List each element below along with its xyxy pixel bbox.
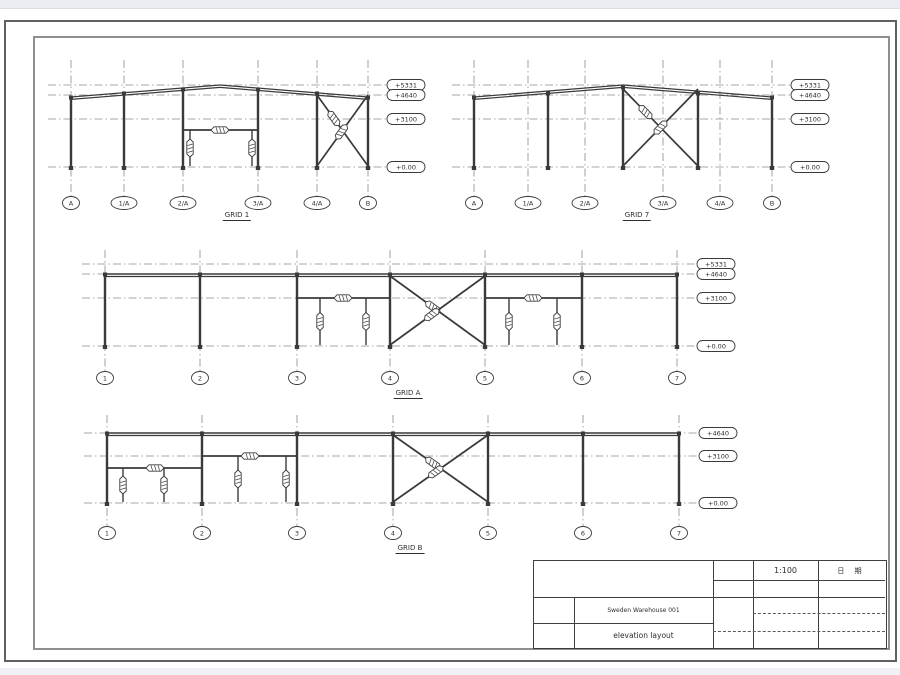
drawing-text: +4640 <box>707 429 729 437</box>
drawing-text: +0.00 <box>708 499 728 507</box>
turnbuckle-symbol <box>146 465 164 471</box>
drawing-text: 2 <box>200 529 204 537</box>
column-top-joint <box>770 96 774 100</box>
column-base <box>770 166 774 170</box>
drawing-text: +0.00 <box>396 163 416 171</box>
column-base <box>581 502 585 506</box>
turnbuckle-symbol <box>187 139 193 157</box>
view-caption-grid-b: GRID B <box>396 544 425 554</box>
column-top-joint <box>295 273 299 277</box>
view-caption-grid-1: GRID 1 <box>223 211 251 221</box>
project-name: Sweden Warehouse 001 <box>574 597 713 623</box>
drawing-text: 5 <box>483 374 487 382</box>
column-base <box>315 166 319 170</box>
column-base <box>122 166 126 170</box>
column-base <box>256 166 260 170</box>
column-top-joint <box>696 92 700 96</box>
column-base <box>181 166 185 170</box>
drawing-text: 4/A <box>312 199 323 207</box>
drawing-scale: 1:100 <box>753 561 818 580</box>
date-label: 日 期 <box>818 561 885 580</box>
column-top-joint <box>391 432 395 436</box>
column-top-joint <box>105 432 109 436</box>
drawing-text: 7 <box>677 529 681 537</box>
turnbuckle-symbol <box>554 313 560 331</box>
column-base <box>388 345 392 349</box>
drawing-text: A <box>472 199 477 207</box>
drawing-text: 2/A <box>580 199 591 207</box>
column-base <box>675 345 679 349</box>
column-top-joint <box>546 92 550 96</box>
drawing-text: 3/A <box>658 199 669 207</box>
column-base <box>580 345 584 349</box>
turnbuckle-symbol <box>506 313 512 331</box>
column-base <box>677 502 681 506</box>
drawing-text: +5331 <box>705 260 727 268</box>
column-top-joint <box>315 92 319 96</box>
column-base <box>483 345 487 349</box>
drawing-text: 2/A <box>178 199 189 207</box>
drawing-text: +4640 <box>705 270 727 278</box>
drawing-text: A <box>69 199 74 207</box>
title-block-dashed-divider <box>713 631 885 632</box>
turnbuckle-symbol <box>326 109 342 127</box>
column-top-joint <box>621 86 625 90</box>
column-top-joint <box>581 432 585 436</box>
drawing-text: +3100 <box>705 294 727 302</box>
column-base <box>295 345 299 349</box>
column-top-joint <box>198 273 202 277</box>
column-top-joint <box>677 432 681 436</box>
column-base <box>295 502 299 506</box>
turnbuckle-symbol <box>317 313 323 331</box>
turnbuckle-symbol <box>334 295 352 301</box>
column-base <box>696 166 700 170</box>
column-top-joint <box>472 96 476 100</box>
cad-sheet-screenshot: A1/A2/A3/A4/AB+5331+4640+3100+0.00A1/A2/… <box>0 0 900 675</box>
drawing-text: 1/A <box>523 199 534 207</box>
column-base <box>103 345 107 349</box>
drawing-text: 5 <box>486 529 490 537</box>
column-top-joint <box>483 273 487 277</box>
turnbuckle-symbol <box>161 476 167 494</box>
drawing-text: +3100 <box>707 452 729 460</box>
drawing-text: B <box>366 199 370 207</box>
column-top-joint <box>69 96 73 100</box>
turnbuckle-symbol <box>524 295 542 301</box>
drawing-text: 1 <box>105 529 109 537</box>
column-top-joint <box>181 88 185 92</box>
column-top-joint <box>295 432 299 436</box>
drawing-text: 7 <box>675 374 679 382</box>
column-top-joint <box>122 92 126 96</box>
turnbuckle-symbol <box>241 453 259 459</box>
title-block-divider <box>713 580 885 581</box>
column-top-joint <box>580 273 584 277</box>
column-base <box>200 502 204 506</box>
drawing-text: 4 <box>388 374 392 382</box>
drawing-text: +0.00 <box>800 163 820 171</box>
column-top-joint <box>675 273 679 277</box>
drawing-text: 6 <box>580 374 584 382</box>
column-base <box>621 166 625 170</box>
column-base <box>105 502 109 506</box>
drawing-text: +5331 <box>799 81 821 89</box>
drawing-text: 1 <box>103 374 107 382</box>
column-base <box>472 166 476 170</box>
drawing-text: +4640 <box>799 91 821 99</box>
turnbuckle-symbol <box>249 139 255 157</box>
drawing-text: 6 <box>581 529 585 537</box>
drawing-text: 3 <box>295 374 299 382</box>
column-base <box>486 502 490 506</box>
column-base <box>198 345 202 349</box>
column-top-joint <box>388 273 392 277</box>
drawing-text: 4/A <box>715 199 726 207</box>
elevation-view-grid-7: A1/A2/A3/A4/AB+5331+4640+3100+0.00 <box>452 60 829 210</box>
column-base <box>366 166 370 170</box>
column-base <box>546 166 550 170</box>
sheet-title: elevation layout <box>574 623 713 648</box>
bottom-chrome-strip <box>0 668 900 675</box>
column-top-joint <box>486 432 490 436</box>
elevation-view-grid-b: 1234567+4640+3100+0.00 <box>84 415 737 540</box>
turnbuckle-symbol <box>235 470 241 488</box>
title-block: 1:100 日 期 Sweden Warehouse 001 elevation… <box>533 560 887 649</box>
structural-member <box>71 87 220 99</box>
drawing-text: +3100 <box>395 115 417 123</box>
drawing-text: 3 <box>295 529 299 537</box>
drawing-text: B <box>770 199 774 207</box>
drawing-text: +4640 <box>395 91 417 99</box>
column-top-joint <box>103 273 107 277</box>
turnbuckle-symbol <box>211 127 229 133</box>
elevation-view-grid-1: A1/A2/A3/A4/AB+5331+4640+3100+0.00 <box>48 60 425 210</box>
column-top-joint <box>200 432 204 436</box>
drawing-text: 2 <box>198 374 202 382</box>
elevation-view-grid-a: 1234567+5331+4640+3100+0.00 <box>82 250 735 385</box>
drawing-text: 3/A <box>253 199 264 207</box>
turnbuckle-symbol <box>637 103 654 120</box>
view-caption-grid-7: GRID 7 <box>623 211 651 221</box>
turnbuckle-symbol <box>283 470 289 488</box>
drawing-text: +5331 <box>395 81 417 89</box>
view-caption-grid-a: GRID A <box>394 389 423 399</box>
drawing-text: +3100 <box>799 115 821 123</box>
column-top-joint <box>256 88 260 92</box>
drawing-text: 4 <box>391 529 395 537</box>
title-block-divider <box>713 561 714 649</box>
drawing-text: 1/A <box>119 199 130 207</box>
turnbuckle-symbol <box>363 313 369 331</box>
title-block-dashed-divider <box>753 613 885 614</box>
drawing-text: +0.00 <box>706 342 726 350</box>
structural-member <box>220 87 368 99</box>
column-base <box>391 502 395 506</box>
turnbuckle-symbol <box>120 476 126 494</box>
structural-member <box>220 85 368 97</box>
column-base <box>69 166 73 170</box>
